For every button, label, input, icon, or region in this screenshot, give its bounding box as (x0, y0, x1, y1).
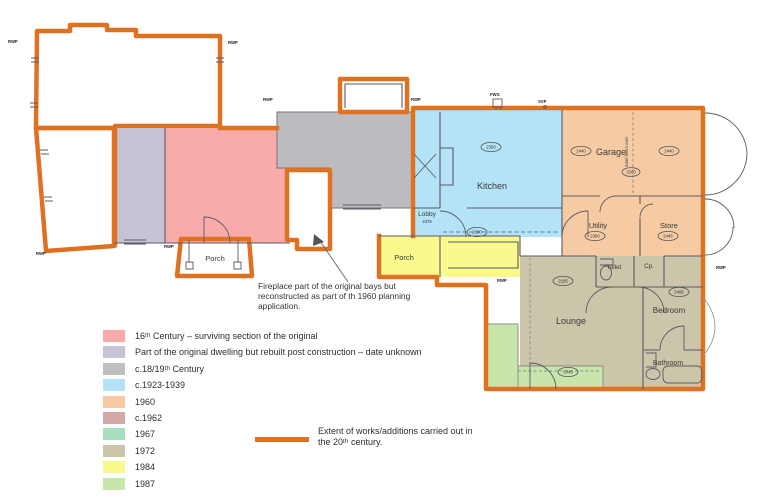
utility-label: Utility (589, 221, 608, 230)
region-1960-left (36, 128, 114, 251)
rwp-label: RWP (497, 278, 507, 283)
rwp-label: RWP (36, 251, 46, 256)
legend-swatch (103, 379, 125, 391)
legend-item: 1984 (103, 461, 533, 473)
legend: 16ᵗʰ Century – surviving section of the … (103, 330, 533, 494)
kitchen-label: Kitchen (477, 181, 507, 191)
legend-item-label: c.1923-1939 (135, 380, 185, 390)
dim-lobby: 2375 (422, 219, 432, 224)
region-bay-fireplace (287, 170, 330, 249)
legend-item-label: c.18/19ᵗʰ Century (135, 364, 204, 374)
fwg-label: FWG (490, 92, 500, 97)
rwp-label: RWP (716, 265, 726, 270)
rwp-label: RWP (228, 40, 238, 45)
legend-swatch (103, 461, 125, 473)
region-16th-century (165, 128, 286, 243)
dim-text: 2045 (563, 370, 573, 375)
garage-door-swings (705, 113, 747, 255)
legend-item: Part of the original dwelling but rebuil… (103, 346, 533, 358)
legend-item-label: Part of the original dwelling but rebuil… (135, 347, 422, 357)
dim-text: 3200 (626, 170, 636, 175)
legend-swatch (103, 346, 125, 358)
dim-text: 2190 (472, 230, 482, 235)
dim-text: 2445 (663, 234, 673, 239)
extent-line-sample (255, 437, 309, 442)
lobby-label: Lobby (418, 211, 436, 218)
dim-text: 2185 (558, 279, 568, 284)
legend-item: 1987 (103, 478, 533, 490)
legend-item-label: 1984 (135, 462, 155, 472)
garage-label: Garage (596, 147, 626, 157)
legend-swatch (103, 445, 125, 457)
rwp-label: RWP (411, 97, 421, 102)
leader-line (320, 241, 348, 282)
extent-note: Extent of works/additions carried out in… (318, 426, 484, 449)
legend-swatch (103, 412, 125, 424)
region-rebuilt (114, 128, 165, 243)
dim-text: 2440 (576, 149, 586, 154)
legend-item-label: 1960 (135, 397, 155, 407)
porch-front-label: Porch (394, 253, 414, 262)
porch-left-label: Porch (205, 254, 225, 263)
legend-swatch (103, 396, 125, 408)
rwp-label: RWP (263, 97, 273, 102)
legend-item-label: 1987 (135, 479, 155, 489)
rwp-label: RWP (164, 244, 174, 249)
legend-swatch (103, 478, 125, 490)
dim-text: 2495 (674, 290, 684, 295)
legend-item: c.1962 (103, 412, 533, 424)
legend-swatch (103, 363, 125, 375)
legend-item: 16ᵗʰ Century – surviving section of the … (103, 330, 533, 342)
lounge-label: Lounge (556, 316, 586, 326)
steel-beam-note: Steel beam over (624, 136, 629, 167)
cupboard-label: Cp. (644, 263, 654, 270)
bathroom-label: Bathroom (653, 360, 684, 367)
dim-text: 2360 (486, 145, 496, 150)
toilet-label: Toilet (607, 264, 622, 271)
legend-item-label: c.1962 (135, 413, 162, 423)
dim-text: 2360 (590, 234, 600, 239)
legend-item: c.1923-1939 (103, 379, 533, 391)
floor-plan-page: 2360 2440 2440 3200 2360 2445 (0, 0, 761, 501)
region-1967 (36, 25, 220, 128)
store-label: Store (660, 221, 678, 230)
region-1819-century (277, 112, 413, 208)
legend-item-label: 16ᵗʰ Century – surviving section of the … (135, 331, 318, 341)
region-1960-garage-block (562, 110, 703, 256)
legend-item-label: 1967 (135, 429, 155, 439)
svp-label: SVP (538, 99, 547, 104)
legend-item: c.18/19ᵗʰ Century (103, 363, 533, 375)
fireplace-note: Fireplace part of the original bays but … (258, 282, 420, 312)
legend-swatch (103, 330, 125, 342)
dim-text: 2440 (664, 149, 674, 154)
legend-item: 1960 (103, 396, 533, 408)
rwp-label: RWP (8, 39, 18, 44)
legend-swatch (103, 428, 125, 440)
bedroom-label: Bedroom (653, 306, 686, 315)
legend-item-label: 1972 (135, 446, 155, 456)
